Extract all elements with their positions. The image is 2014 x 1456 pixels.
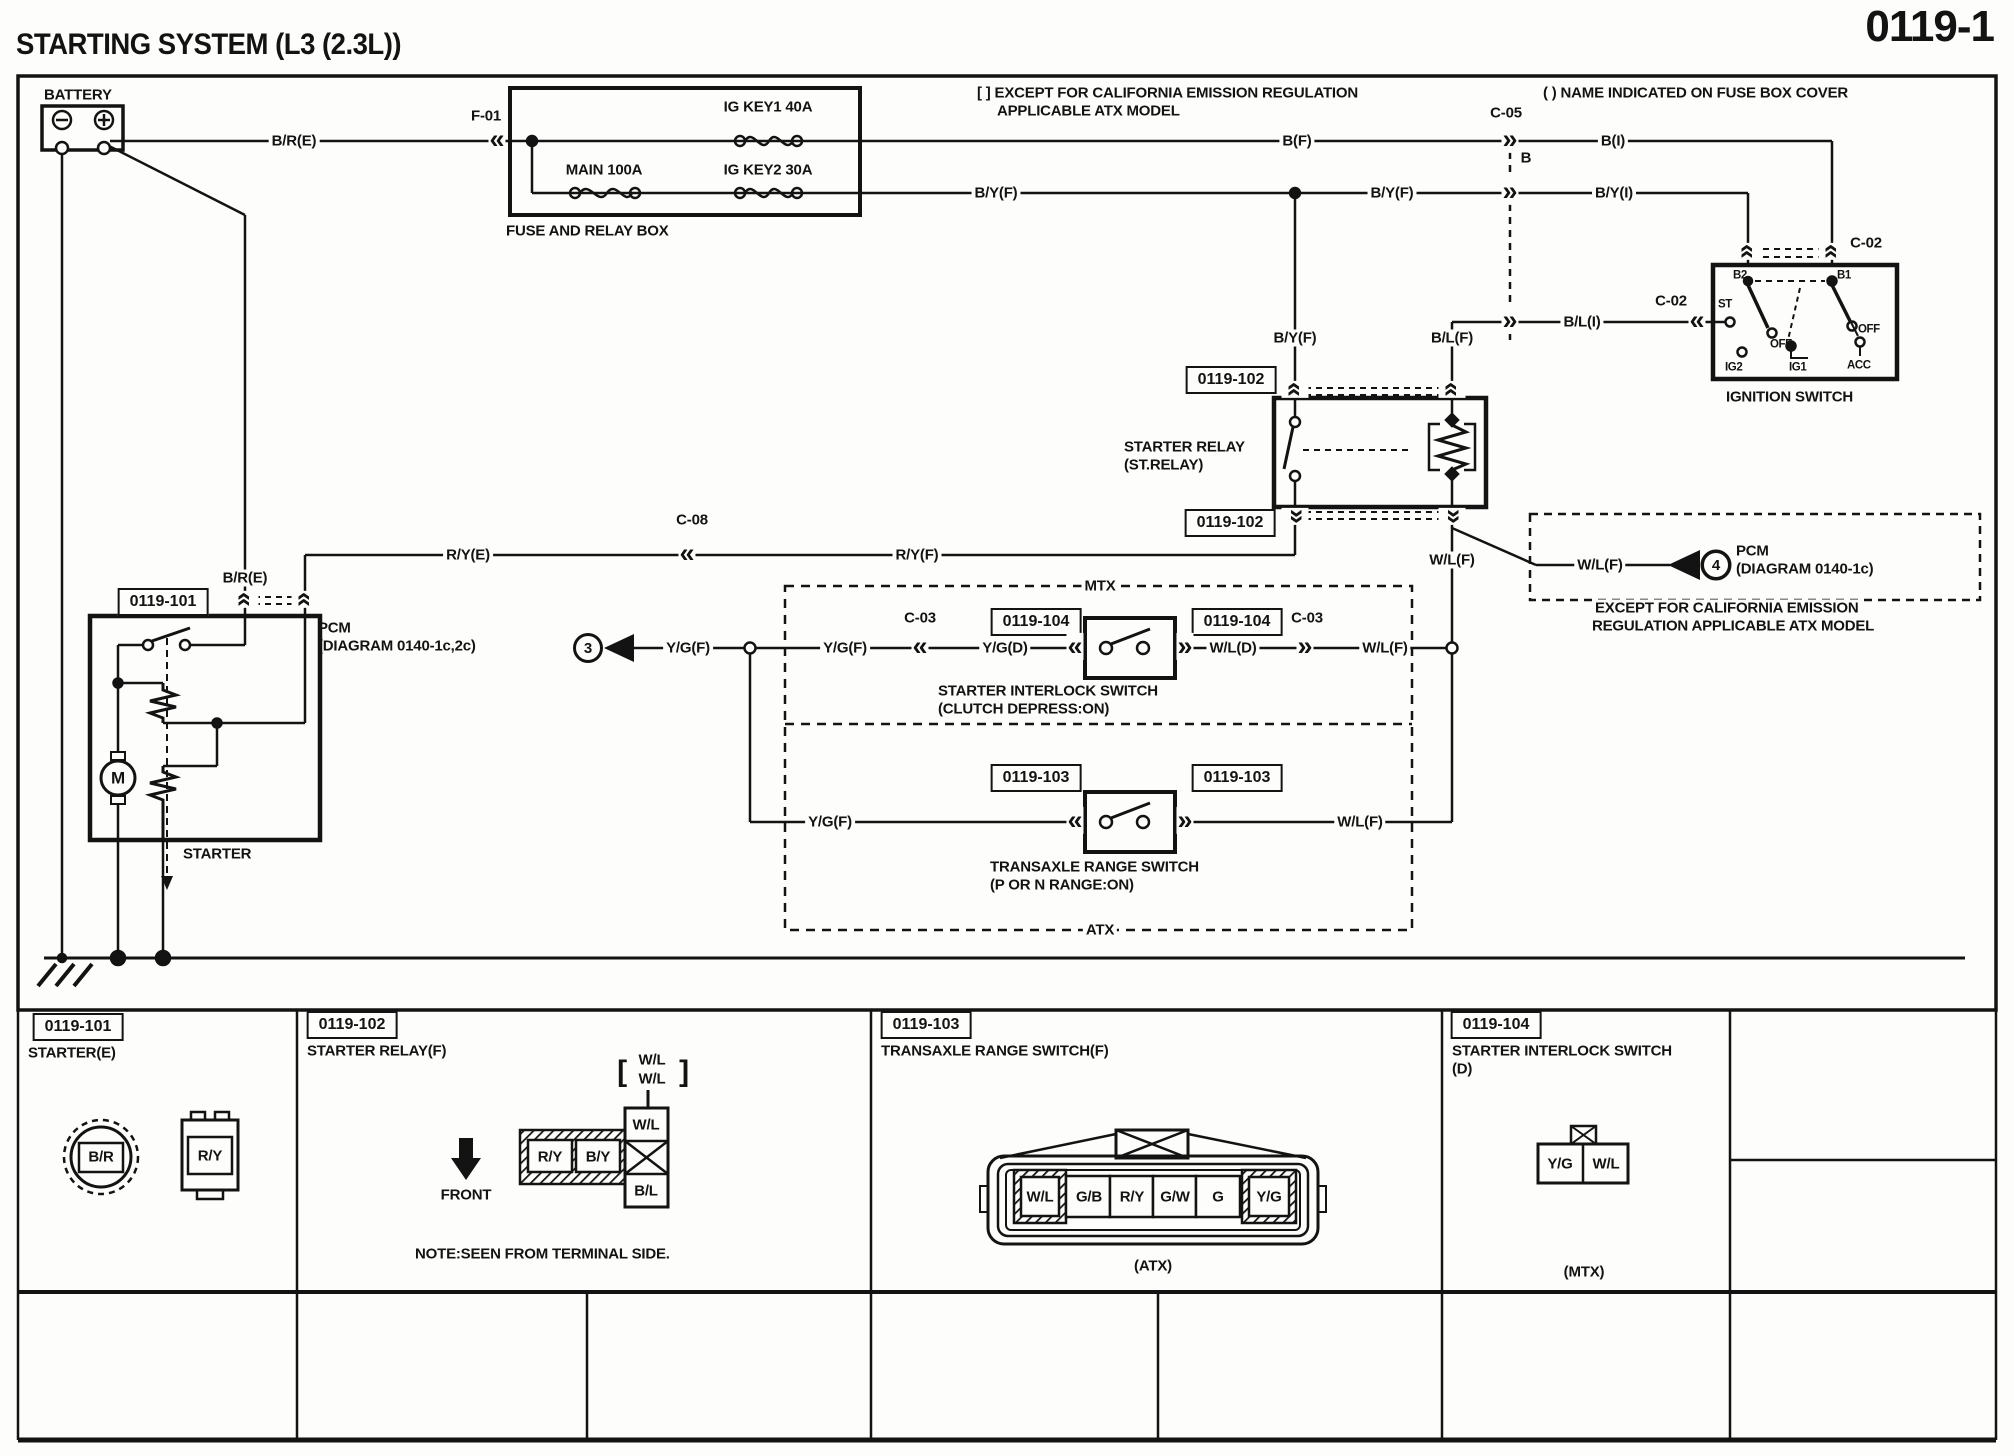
wire-label: IG KEY2 30A bbox=[721, 162, 816, 179]
wire-label: R/Y(F) bbox=[893, 547, 942, 564]
component-label: [ bbox=[617, 1057, 627, 1087]
wire-label: C-03 bbox=[901, 610, 939, 627]
wire-label: ATX bbox=[1083, 922, 1117, 939]
connector-arrow-icon: « bbox=[1066, 807, 1083, 834]
component-label: W/L bbox=[1027, 1190, 1054, 1205]
wire-label: Y/G(F) bbox=[820, 640, 870, 657]
component-label: W/L bbox=[1593, 1157, 1620, 1172]
component-label: PCM bbox=[1736, 544, 1769, 559]
terminal-pin-label: ACC bbox=[1847, 360, 1871, 372]
wire-label: Y/G(D) bbox=[979, 640, 1030, 657]
connector-arrow-icon: « bbox=[1439, 381, 1466, 398]
component-label: TRANSAXLE RANGE SWITCH(F) bbox=[881, 1044, 1109, 1059]
wire-label: B/R(E) bbox=[269, 133, 320, 150]
terminal-pin-label: OFF bbox=[1770, 339, 1792, 351]
terminal-pin-label: B1 bbox=[1837, 270, 1851, 282]
wire-label: R/Y(E) bbox=[443, 547, 493, 564]
terminal-pin-label: OFF bbox=[1858, 324, 1880, 336]
component-label: W/L bbox=[639, 1072, 666, 1087]
component-label: B/L bbox=[634, 1184, 658, 1199]
wire-label: B/Y(I) bbox=[1592, 185, 1636, 202]
connector-arrow-icon: « bbox=[678, 540, 695, 567]
wire-label: C-05 bbox=[1487, 105, 1525, 122]
component-label: (ST.RELAY) bbox=[1124, 458, 1203, 473]
wire-label: W/L(D) bbox=[1206, 640, 1259, 657]
connector-arrow-icon: » bbox=[1176, 633, 1193, 660]
component-label: (MTX) bbox=[1564, 1265, 1605, 1280]
connector-ref-box: 0119-102 bbox=[1186, 366, 1277, 394]
wire-label: B/Y(F) bbox=[1271, 330, 1320, 347]
component-label: STARTER(E) bbox=[28, 1046, 116, 1061]
connector-arrow-icon: « bbox=[1282, 381, 1309, 398]
wire-label: Y/G(F) bbox=[805, 814, 855, 831]
wiring-diagram-page: STARTING SYSTEM (L3 (2.3L)) 0119-1 bbox=[0, 0, 2014, 1456]
component-label: BATTERY bbox=[44, 88, 112, 103]
connector-ref-box: 0119-101 bbox=[118, 588, 209, 616]
component-label: G bbox=[1212, 1190, 1223, 1205]
connector-ref-box: 0119-104 bbox=[1192, 608, 1283, 636]
wire-label: C-08 bbox=[673, 512, 711, 529]
wire-label: B/Y(F) bbox=[972, 185, 1021, 202]
wire-label: F-01 bbox=[468, 108, 504, 125]
component-label: NOTE:SEEN FROM TERMINAL SIDE. bbox=[415, 1247, 670, 1262]
component-label: (DIAGRAM 0140-1c,2c) bbox=[318, 639, 476, 654]
component-label: [ ] EXCEPT FOR CALIFORNIA EMISSION REGUL… bbox=[977, 86, 1358, 101]
circuit-reference-circle: 3 bbox=[573, 633, 603, 663]
wire-label: B(F) bbox=[1279, 133, 1314, 150]
component-label: B/Y bbox=[586, 1150, 610, 1165]
connector-arrow-icon: » bbox=[1501, 178, 1518, 205]
component-label: STARTER INTERLOCK SWITCH bbox=[938, 684, 1158, 699]
wire-label: B(I) bbox=[1598, 133, 1628, 150]
connector-ref-box: 0119-101 bbox=[33, 1013, 124, 1041]
connector-ref-box: 0119-102 bbox=[307, 1011, 398, 1039]
component-label: G/B bbox=[1076, 1190, 1102, 1205]
wire-label: Y/G(F) bbox=[663, 640, 713, 657]
component-label: (DIAGRAM 0140-1c) bbox=[1736, 562, 1873, 577]
component-label: G/W bbox=[1160, 1190, 1189, 1205]
component-label: M bbox=[111, 770, 125, 787]
component-label: STARTER RELAY bbox=[1124, 440, 1245, 455]
connector-ref-box: 0119-102 bbox=[1185, 509, 1276, 537]
wire-label: W/L(F) bbox=[1334, 814, 1385, 831]
component-label: STARTER bbox=[183, 847, 251, 862]
component-label: (P OR N RANGE:ON) bbox=[990, 878, 1134, 893]
component-label: ( ) NAME INDICATED ON FUSE BOX COVER bbox=[1543, 86, 1848, 101]
component-label: (D) bbox=[1452, 1062, 1472, 1077]
wire-label: C-03 bbox=[1288, 610, 1326, 627]
wire-label: B bbox=[1518, 150, 1535, 167]
wire-label: B/L(F) bbox=[1428, 330, 1476, 347]
wire-label: MTX bbox=[1081, 578, 1118, 595]
connector-arrow-icon: « bbox=[488, 126, 505, 153]
component-label: B/R bbox=[88, 1150, 113, 1165]
wire-label: C-02 bbox=[1652, 293, 1690, 310]
connector-arrow-icon: » bbox=[1501, 307, 1518, 334]
connector-arrow-icon: « bbox=[1282, 508, 1309, 525]
component-label: Y/G bbox=[1256, 1190, 1281, 1205]
terminal-pin-label: ST bbox=[1718, 299, 1732, 311]
connector-arrow-icon: « bbox=[1819, 243, 1846, 260]
connector-ref-box: 0119-104 bbox=[1451, 1011, 1542, 1039]
component-label: PCM bbox=[318, 621, 351, 636]
component-label: (CLUTCH DEPRESS:ON) bbox=[938, 702, 1109, 717]
wire-label: B/R(E) bbox=[220, 570, 271, 587]
connector-arrow-icon: « bbox=[1735, 243, 1762, 260]
connector-arrow-icon: « bbox=[1688, 307, 1705, 334]
component-label: IGNITION SWITCH bbox=[1726, 390, 1853, 405]
connector-arrow-icon: « bbox=[292, 591, 319, 608]
component-label: APPLICABLE ATX MODEL bbox=[997, 104, 1180, 119]
connector-ref-box: 0119-103 bbox=[991, 764, 1082, 792]
component-label: (ATX) bbox=[1134, 1259, 1172, 1274]
component-label: STARTER RELAY(F) bbox=[307, 1044, 446, 1059]
terminal-pin-label: IG2 bbox=[1725, 362, 1742, 374]
connector-arrow-icon: » bbox=[1501, 126, 1518, 153]
terminal-pin-label: B2 bbox=[1733, 270, 1747, 282]
component-label: STARTER INTERLOCK SWITCH bbox=[1452, 1044, 1672, 1059]
component-label: EXCEPT FOR CALIFORNIA EMISSION bbox=[1592, 600, 1861, 617]
wire-label: C-02 bbox=[1847, 235, 1885, 252]
component-label: R/Y bbox=[538, 1150, 562, 1165]
component-label: Y/G bbox=[1547, 1157, 1572, 1172]
wire-label: IG KEY1 40A bbox=[721, 99, 816, 116]
wire-label: B/Y(F) bbox=[1368, 185, 1417, 202]
connector-ref-box: 0119-103 bbox=[881, 1011, 972, 1039]
wire-label: B/L(I) bbox=[1560, 314, 1603, 331]
wire-label: W/L(F) bbox=[1359, 640, 1410, 657]
circuit-reference-circle: 4 bbox=[1701, 550, 1731, 580]
wire-label: MAIN 100A bbox=[563, 162, 646, 179]
connector-arrow-icon: « bbox=[911, 633, 928, 660]
connector-ref-box: 0119-103 bbox=[1192, 764, 1283, 792]
component-label: R/Y bbox=[1120, 1190, 1144, 1205]
connector-arrow-icon: « bbox=[232, 591, 259, 608]
terminal-pin-label: IG1 bbox=[1789, 362, 1806, 374]
connector-arrow-icon: » bbox=[1296, 633, 1313, 660]
component-label: FUSE AND RELAY BOX bbox=[506, 224, 669, 239]
wire-label: W/L(F) bbox=[1574, 557, 1625, 574]
component-label: R/Y bbox=[198, 1149, 222, 1164]
connector-arrow-icon: « bbox=[1066, 633, 1083, 660]
component-label: TRANSAXLE RANGE SWITCH bbox=[990, 860, 1199, 875]
component-label: REGULATION APPLICABLE ATX MODEL bbox=[1592, 619, 1874, 634]
diagram-geometry bbox=[0, 0, 2014, 1456]
connector-arrow-icon: « bbox=[1439, 508, 1466, 525]
component-label: ] bbox=[679, 1057, 689, 1087]
connector-arrow-icon: » bbox=[1176, 807, 1193, 834]
component-label: FRONT bbox=[441, 1188, 492, 1203]
wire-label: W/L(F) bbox=[1426, 552, 1477, 569]
component-label: W/L bbox=[633, 1118, 660, 1133]
component-label: W/L bbox=[639, 1053, 666, 1068]
